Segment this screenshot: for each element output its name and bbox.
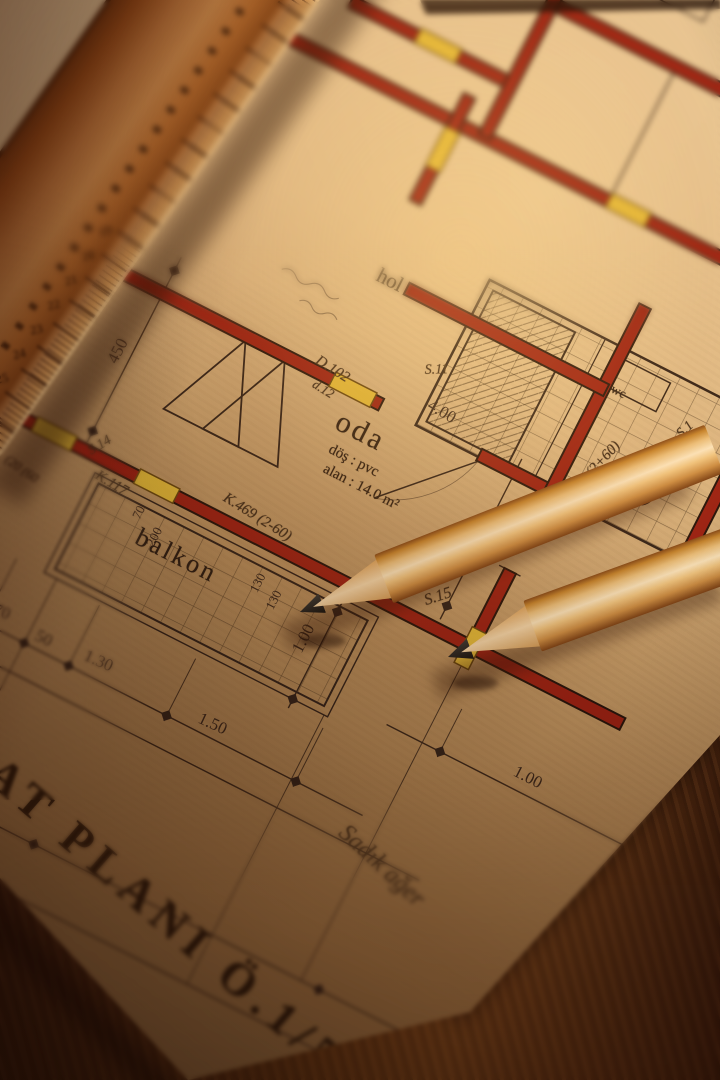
blur-overlay-left [0,200,150,800]
pencil-tip-shadow [300,634,346,648]
photo-stage: 70 50 1.30 1.50 1.00 1.00 450 250 4.00 7… [0,0,720,1080]
blur-overlay-bottom [0,780,720,1080]
dim-1-50: 1.50 [195,709,230,739]
annotation-s11: S.11 [425,362,449,378]
